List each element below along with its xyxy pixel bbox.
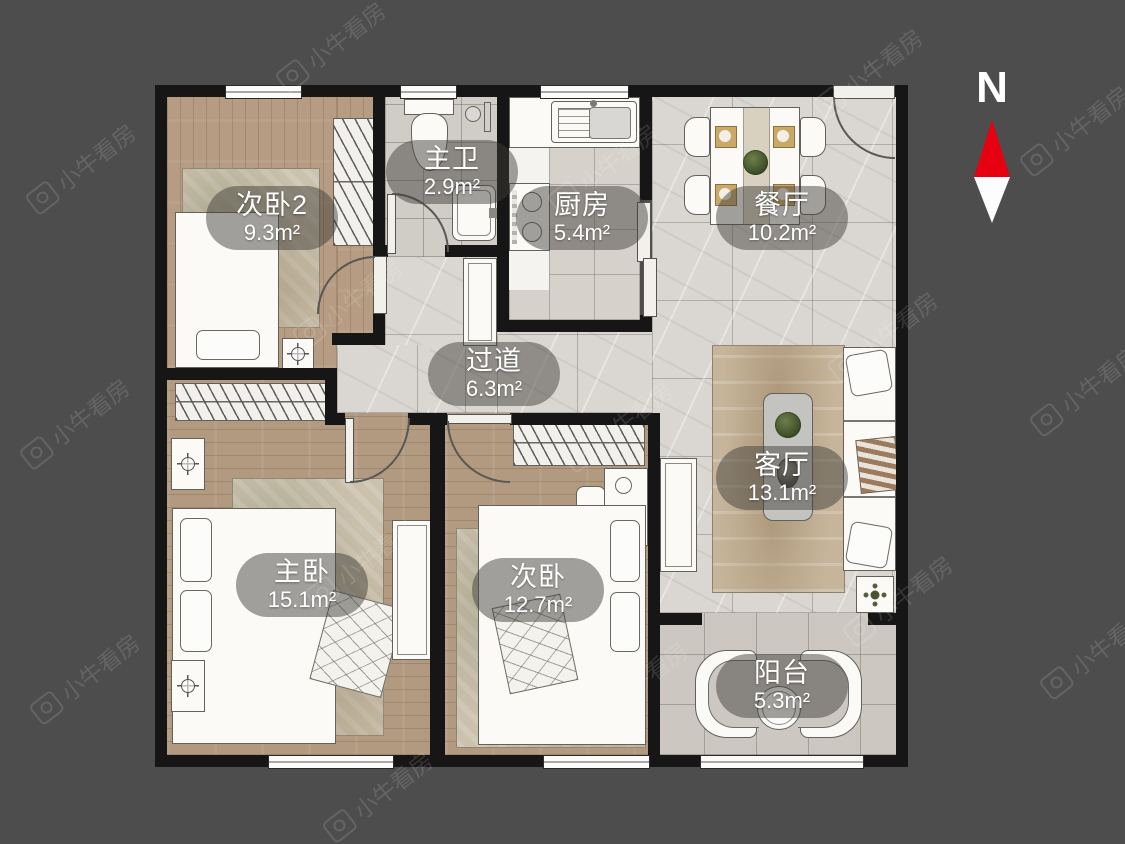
- watermark: 小牛看房: [21, 115, 142, 220]
- watermark-camera-icon: [28, 689, 65, 726]
- wall: [896, 85, 908, 767]
- room-label-balcony: 阳台 5.3m²: [716, 654, 848, 718]
- hall-cabinet-panel: [468, 263, 492, 341]
- room-label-living: 客厅 13.1m²: [716, 446, 848, 510]
- bedroom2-wardrobe: [333, 118, 375, 246]
- shower-head-icon: [465, 106, 481, 122]
- room-area: 13.1m²: [748, 480, 816, 505]
- room-label-kitchen: 厨房 5.4m²: [516, 186, 648, 250]
- sofa-cushion-seam: [844, 496, 895, 498]
- master-nightstand: [171, 438, 205, 490]
- master-cabinet: [392, 520, 432, 660]
- watermark-camera-icon: [1038, 664, 1075, 701]
- sofa-cushion-seam: [844, 420, 895, 422]
- room-area: 5.3m²: [754, 688, 810, 713]
- window: [400, 85, 457, 99]
- wall: [325, 413, 345, 425]
- wall: [497, 320, 652, 332]
- watermark: 小牛看房: [1025, 337, 1125, 442]
- room-area: 9.3m²: [244, 220, 300, 245]
- room-name: 次卧2: [236, 191, 308, 220]
- sofa-pillow: [845, 521, 894, 570]
- desk-lamp-icon: [615, 477, 632, 494]
- wall: [155, 368, 337, 380]
- room-name: 过道: [466, 347, 522, 376]
- room-name: 厨房: [554, 191, 610, 220]
- watermark: 小牛看房: [1035, 600, 1125, 705]
- room-label-master-bedroom: 主卧 15.1m²: [236, 553, 368, 617]
- kitchen-sliding-door-panel: [643, 258, 657, 317]
- watermark-camera-icon: [1018, 141, 1055, 178]
- sofa-pillow: [845, 349, 894, 398]
- room-area: 2.9m²: [424, 174, 480, 199]
- room-name: 主卫: [424, 145, 480, 174]
- plate: [777, 130, 789, 142]
- bedroom2-lamp-symbol: [282, 338, 314, 370]
- watermark-camera-icon: [321, 807, 358, 844]
- compass-arrow-north-icon: [974, 120, 1010, 177]
- room-name: 餐厅: [754, 191, 810, 220]
- dining-chair: [684, 117, 710, 157]
- watermark: 小牛看房: [25, 625, 146, 730]
- hall-cabinet: [463, 258, 497, 346]
- watermark-camera-icon: [18, 434, 55, 471]
- room-label-bedroom: 次卧 12.7m²: [472, 558, 604, 622]
- dining-chair: [800, 117, 826, 157]
- dining-chair: [684, 175, 710, 215]
- flower-icon: [871, 590, 880, 599]
- master-wardrobe: [175, 383, 327, 421]
- room-area: 5.4m²: [554, 220, 610, 245]
- room-area: 10.2m²: [748, 220, 816, 245]
- bedroom-pillow: [610, 592, 640, 652]
- wall: [325, 380, 337, 413]
- placemat: [715, 126, 737, 148]
- watermark: 小牛看房: [1015, 77, 1125, 182]
- window: [268, 755, 394, 769]
- tv-cabinet-panel: [665, 463, 692, 567]
- shower-bar-icon: [484, 102, 491, 132]
- master-pillow: [180, 518, 212, 582]
- floor-corridor-3: [337, 345, 430, 413]
- wall: [497, 97, 509, 332]
- placemat: [773, 126, 795, 148]
- room-area: 6.3m²: [466, 376, 522, 401]
- kitchen-sink-basin: [589, 107, 631, 139]
- window: [543, 755, 650, 769]
- master-cabinet-panel: [397, 525, 427, 655]
- room-label-dining: 餐厅 10.2m²: [716, 186, 848, 250]
- plate: [719, 130, 731, 142]
- floor-kitchen-tile-2: [509, 290, 549, 320]
- bedroom-pillow: [610, 520, 640, 582]
- bath-faucet: [489, 208, 497, 218]
- room-area: 12.7m²: [504, 592, 572, 617]
- target-icon: [177, 453, 199, 475]
- coffee-table-plant: [775, 412, 801, 438]
- wall: [652, 613, 702, 625]
- watermark-camera-icon: [24, 179, 61, 216]
- room-area: 15.1m²: [268, 587, 336, 612]
- living-side-table: [856, 576, 894, 613]
- room-label-master-bath: 主卫 2.9m²: [386, 140, 518, 204]
- watermark: 小牛看房: [271, 0, 392, 97]
- watermark-camera-icon: [1028, 401, 1065, 438]
- floorplan-screenshot: 次卧2 9.3m² 主卫 2.9m² 厨房 5.4m² 餐厅 10.2m² 过道…: [0, 0, 1125, 844]
- room-name: 客厅: [754, 451, 810, 480]
- room-name: 主卧: [274, 558, 330, 587]
- wall: [332, 333, 385, 345]
- room-name: 阳台: [754, 659, 810, 688]
- wall: [648, 413, 660, 767]
- window: [225, 85, 302, 99]
- dining-centerpiece-plant: [743, 150, 768, 175]
- kitchen-sink: [551, 101, 637, 143]
- wall: [155, 85, 167, 767]
- target-icon: [287, 343, 309, 365]
- wall: [510, 413, 660, 425]
- master-nightstand: [171, 660, 205, 712]
- wall: [868, 613, 896, 625]
- tv-cabinet: [660, 458, 697, 572]
- room-label-bedroom2: 次卧2 9.3m²: [206, 186, 338, 250]
- wall: [640, 97, 652, 200]
- bedroom2-pillow: [196, 330, 260, 360]
- sofa-throw-blanket: [855, 436, 900, 494]
- wall: [430, 413, 445, 767]
- kitchen-sink-drainboard: [558, 108, 590, 138]
- window: [540, 85, 629, 99]
- wall: [640, 315, 652, 332]
- bedroom-wardrobe: [513, 420, 645, 466]
- master-pillow: [180, 590, 212, 652]
- room-label-corridor: 过道 6.3m²: [428, 342, 560, 406]
- north-label: N: [975, 66, 1009, 110]
- watermark: 小牛看房: [15, 370, 136, 475]
- window: [700, 755, 864, 769]
- kitchen-faucet: [590, 100, 597, 107]
- target-icon: [177, 675, 199, 697]
- bedroom2-door-leaf: [373, 256, 387, 314]
- compass-arrow-south-icon: [974, 177, 1010, 223]
- room-name: 次卧: [510, 563, 566, 592]
